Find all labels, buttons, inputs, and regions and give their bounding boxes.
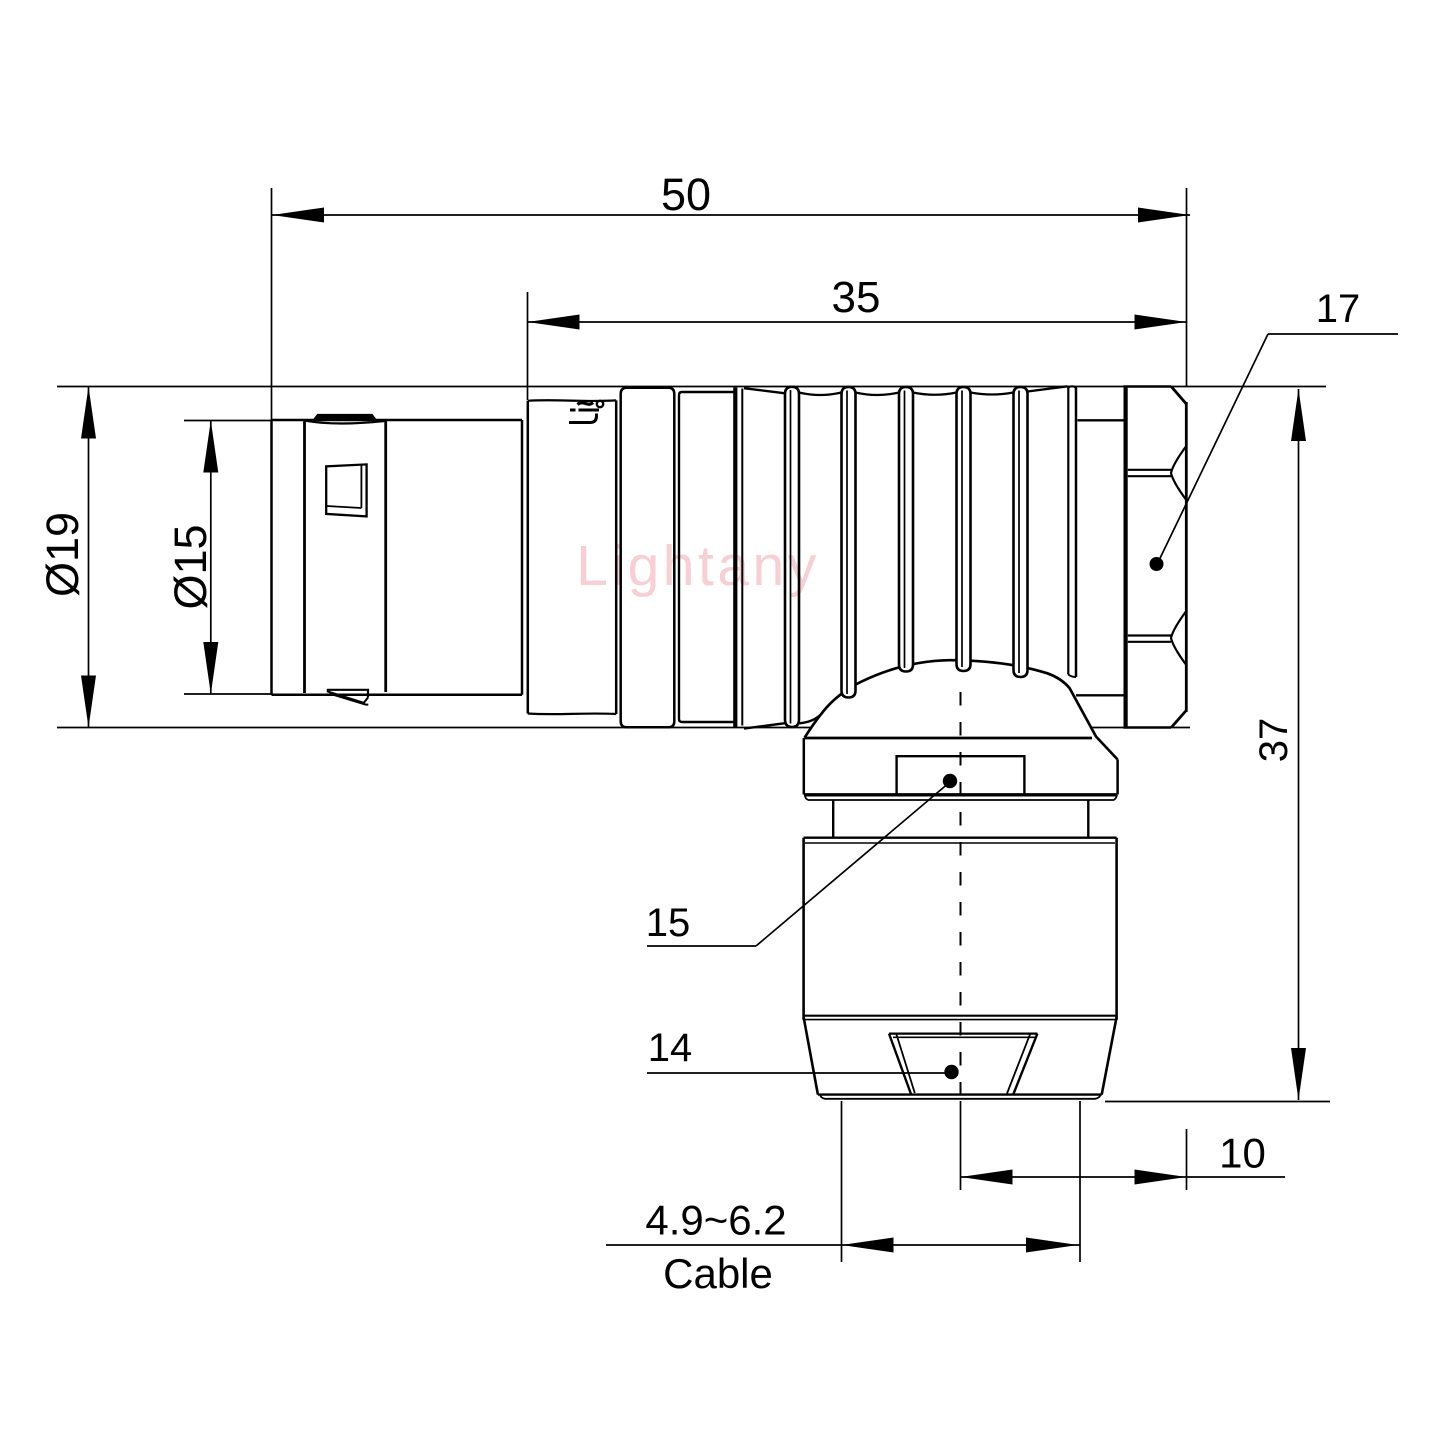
svg-text:Ø19: Ø19: [37, 512, 88, 597]
svg-text:Cable: Cable: [663, 1250, 773, 1297]
svg-text:37: 37: [1252, 718, 1296, 763]
svg-text:Ø15: Ø15: [165, 524, 216, 609]
svg-text:Lightany: Lightany: [576, 534, 820, 598]
svg-text:35: 35: [832, 273, 881, 322]
svg-text:4.9~6.2: 4.9~6.2: [645, 1197, 786, 1244]
svg-text:14: 14: [648, 1026, 693, 1070]
svg-text:17: 17: [1316, 287, 1361, 331]
svg-text:10: 10: [1219, 1130, 1266, 1177]
svg-text:15: 15: [646, 901, 691, 945]
svg-text:50: 50: [661, 169, 711, 220]
